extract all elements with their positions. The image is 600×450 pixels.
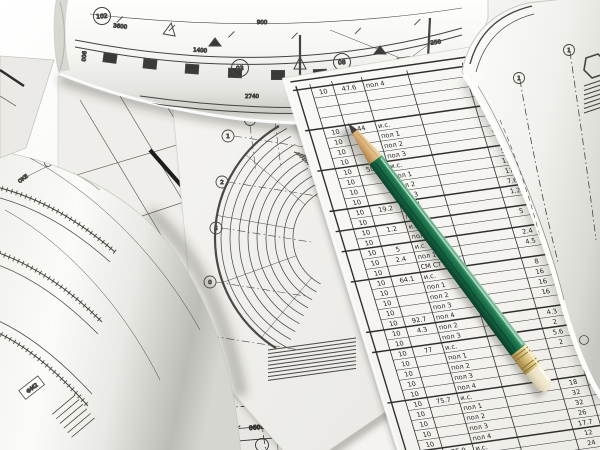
table-cell: 4.5 bbox=[524, 237, 537, 246]
grid-axis-mark: 1 bbox=[567, 48, 570, 54]
table-cell: и.с. bbox=[423, 272, 437, 281]
grid-axis-mark: 1 bbox=[517, 76, 520, 82]
table-cell: и.с. bbox=[377, 121, 391, 130]
table-cell: 1.2 bbox=[385, 225, 398, 234]
table-cell: 4.3 bbox=[546, 307, 559, 316]
table-cell: и.с. bbox=[474, 443, 488, 450]
detail-mark: 03 bbox=[236, 65, 244, 73]
detail-mark: 08 bbox=[338, 59, 346, 67]
plan-dimension: 900 bbox=[79, 51, 86, 63]
plan-dimension: 1400 bbox=[193, 48, 208, 55]
grid-axis-mark: 1 bbox=[226, 134, 230, 140]
table-cell: и.с. bbox=[444, 342, 458, 351]
plan-dimension: 900 bbox=[257, 20, 268, 26]
blueprints-photo: 25013002250209072552751450012501500 Вт55… bbox=[0, 0, 600, 450]
table-cell: 4.3 bbox=[416, 326, 429, 335]
grid-axis-mark: 2 bbox=[220, 180, 224, 186]
plan-dimension: 2740 bbox=[245, 94, 259, 100]
blueprint-scene: 25013002250209072552751450012501500 Вт55… bbox=[0, 0, 600, 450]
sheet-corner bbox=[0, 56, 54, 158]
detail-mark: 102 bbox=[96, 13, 108, 21]
table-cell: и.с. bbox=[459, 393, 473, 402]
table-cell: 5.6 bbox=[552, 327, 565, 336]
table-cell: 2.4 bbox=[395, 255, 408, 264]
grid-axis-mark: 5 bbox=[214, 226, 218, 232]
